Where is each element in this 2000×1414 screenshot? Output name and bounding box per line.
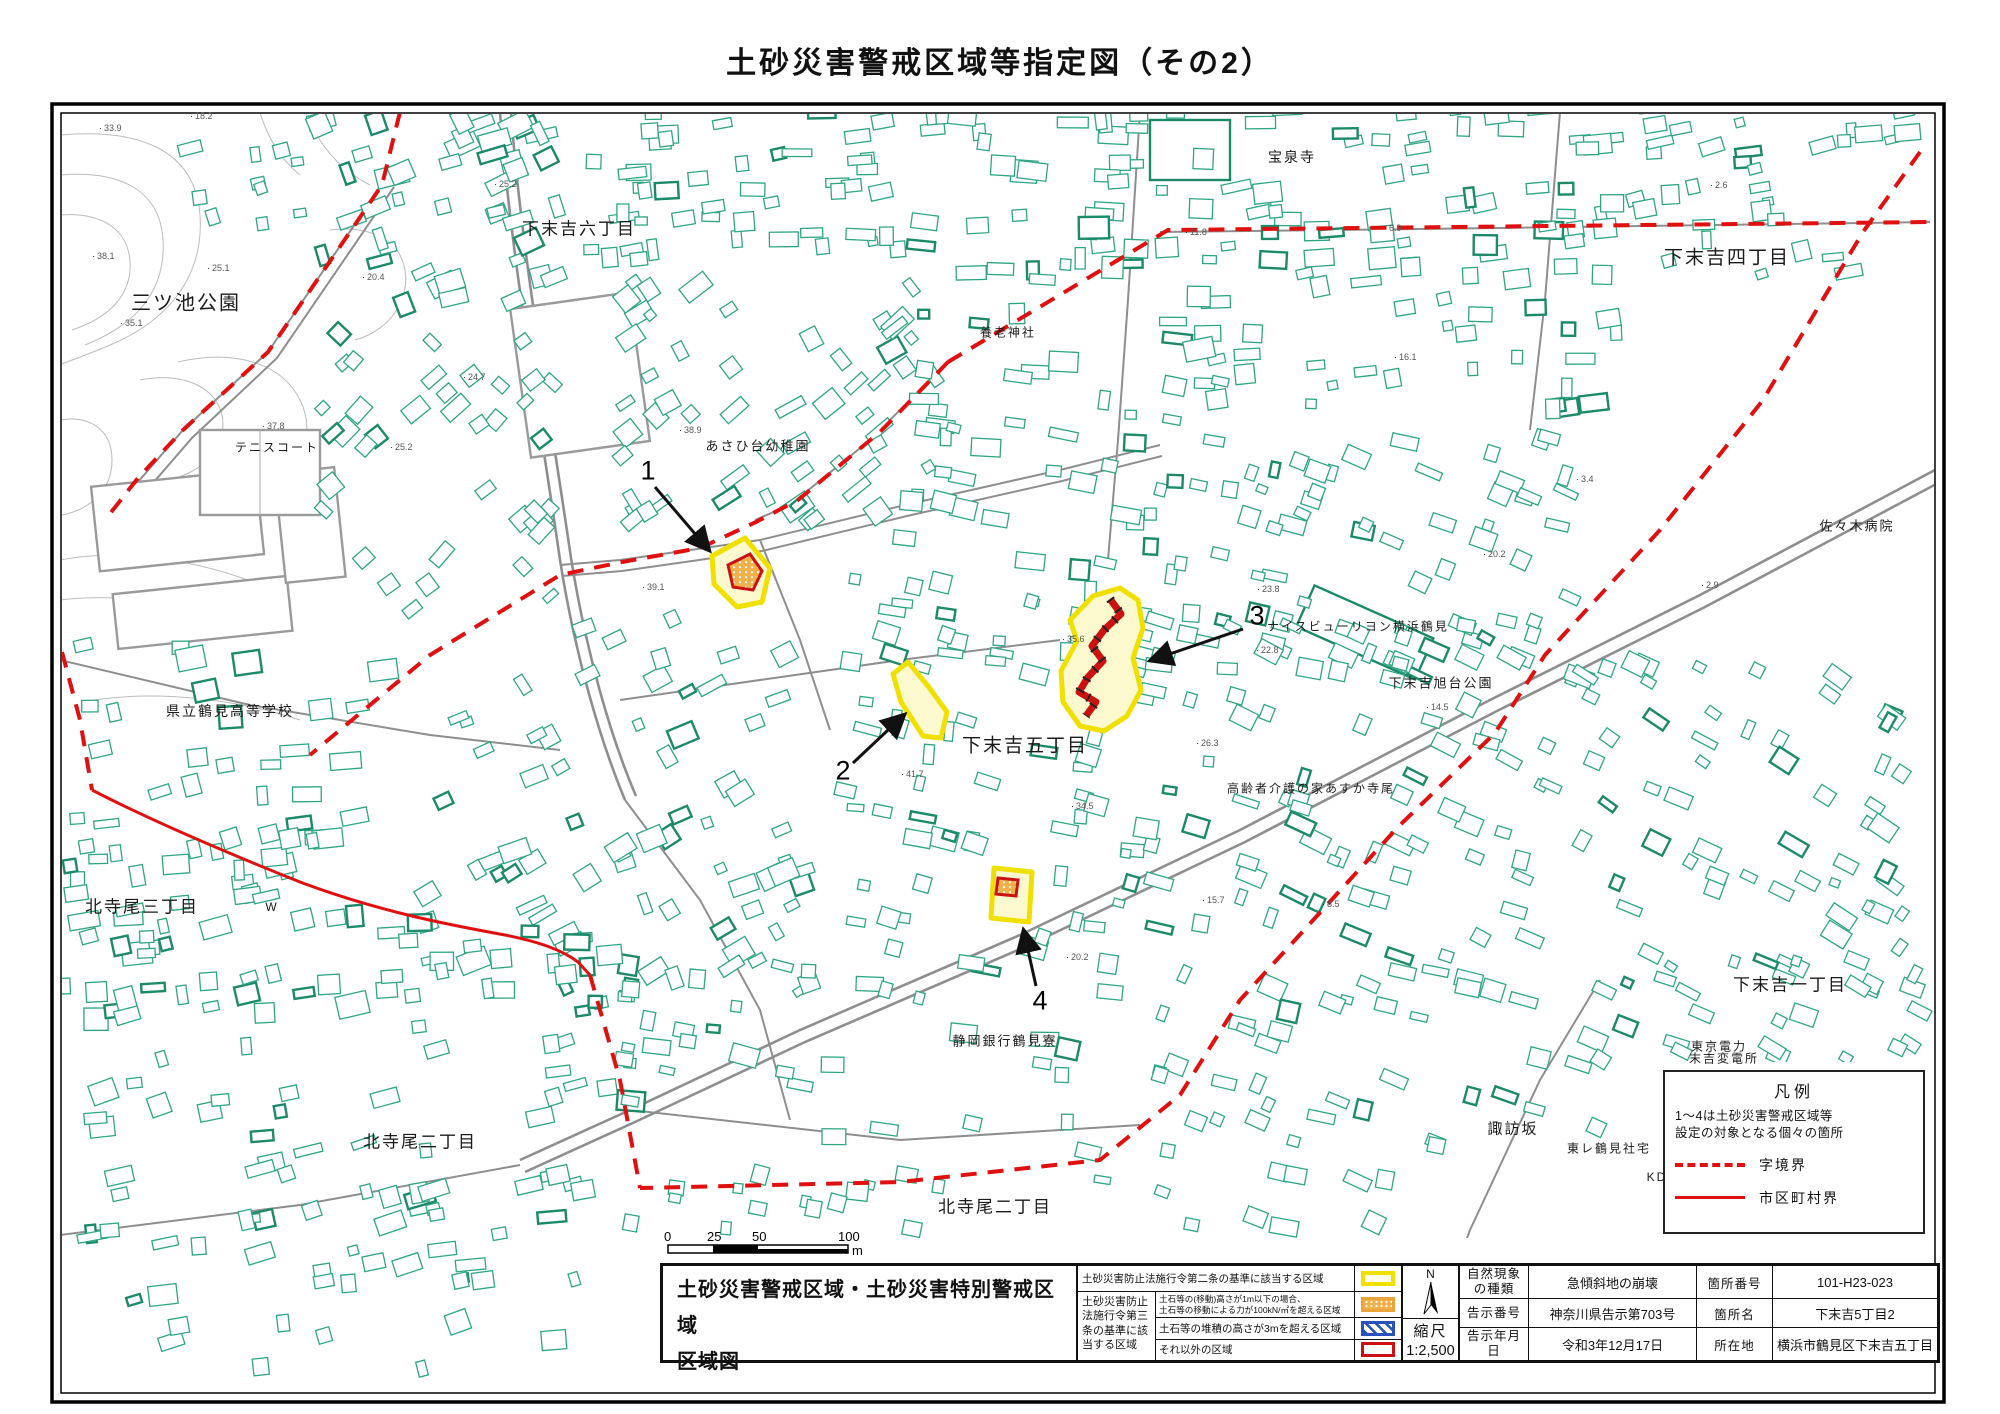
title-line2: 区域図 <box>677 1344 1062 1380</box>
elev: 38.9 <box>679 425 702 435</box>
elev: 8.5 <box>1322 899 1340 909</box>
info-value: 神奈川県告示第703号 <box>1528 1298 1696 1327</box>
elev: 25.1 <box>207 263 230 273</box>
map-label: W <box>265 900 278 914</box>
elev: 3.4 <box>1576 474 1594 484</box>
solid-boundary-label: 市区町村界 <box>1759 1188 1839 1208</box>
north-arrow-icon <box>1421 1280 1441 1316</box>
map-label: 佐々木病院 <box>1819 516 1894 535</box>
info-label: 自然現象 の種類 <box>1460 1266 1528 1298</box>
elev: 25.2 <box>390 442 413 452</box>
scale-25: 25 <box>707 1230 721 1244</box>
elev: 11.8 <box>1185 227 1207 237</box>
elev: 20.4 <box>362 272 385 282</box>
info-value: 急傾斜地の崩壊 <box>1528 1266 1696 1298</box>
map-label: あさひ台幼稚園 <box>705 436 810 455</box>
legend-group-label: 土砂災害防止法施行令第三条の基準に該当する区域 <box>1078 1292 1156 1360</box>
elev: 33.9 <box>99 123 122 133</box>
north-scale-cell: N 縮尺 1:2,500 <box>1401 1266 1458 1360</box>
info-value: 下末吉5丁目2 <box>1772 1298 1937 1327</box>
legend-swatch-red-icon <box>1361 1342 1395 1357</box>
scale-100: 100 <box>838 1230 860 1244</box>
info-value: 令和3年12月17日 <box>1528 1327 1696 1360</box>
elev: 24.7 <box>463 372 486 382</box>
elev: 16.1 <box>1394 352 1417 362</box>
legend-note-line1: 1～4は土砂災害警戒区域等 <box>1675 1108 1913 1125</box>
page: 土砂災害警戒区域等指定図（その2） <box>0 0 2000 1414</box>
title-block-info-table: 自然現象 の種類 急傾斜地の崩壊 箇所番号 101-H23-023 告示番号 神… <box>1458 1266 1937 1360</box>
map-label: 下末吉五丁目 <box>962 731 1088 758</box>
elev: 20.2 <box>1066 952 1089 962</box>
scale-unit: m <box>852 1243 863 1258</box>
map-label: 北寺尾三丁目 <box>85 893 199 918</box>
elev: 23.8 <box>1257 584 1280 594</box>
title-block-legend: 土砂災害防止法施行令第二条の基準に該当する区域 土砂災害防止法施行令第三条の基準… <box>1076 1266 1401 1360</box>
map-label: 末吉変電所 <box>1689 1050 1759 1067</box>
zone-num: 3 <box>1249 601 1264 632</box>
solid-boundary-sample-icon <box>1675 1196 1745 1199</box>
map-label: 下末吉旭台公園 <box>1388 673 1493 692</box>
elev: 2.9 <box>1701 580 1719 590</box>
elev: 41.7 <box>901 769 924 779</box>
map-label: 北寺尾二丁目 <box>938 1193 1052 1218</box>
scale-value: 1:2,500 <box>1406 1343 1454 1359</box>
info-value: 101-H23-023 <box>1772 1266 1937 1298</box>
legend-row2-line1: 土石等の(移動)高さが1m以下の場合、 <box>1159 1294 1351 1305</box>
map-label: 養老神社 <box>980 324 1036 341</box>
elev: 22.8 <box>1256 645 1279 655</box>
map-label: 北寺尾二丁目 <box>363 1128 477 1153</box>
map-label: ナイスビューリヨン横浜鶴見 <box>1267 618 1449 635</box>
elev: 25.2 <box>494 179 517 189</box>
info-label: 箇所名 <box>1696 1298 1772 1327</box>
map-label: 静岡銀行鶴見寮 <box>952 1031 1057 1050</box>
legend-note-line2: 設定の対象となる個々の箇所 <box>1675 1125 1913 1142</box>
title-block: 土砂災害警戒区域・土砂災害特別警戒区域 区域図 土砂災害防止法施行令第二条の基準… <box>660 1263 1940 1363</box>
dashed-boundary-label: 字境界 <box>1759 1155 1807 1175</box>
zone-num: 4 <box>1032 986 1047 1017</box>
info-label: 告示年月日 <box>1460 1327 1528 1360</box>
info-label: 箇所番号 <box>1696 1266 1772 1298</box>
zone-num: 1 <box>640 456 655 487</box>
map-label: 下末吉四丁目 <box>1664 243 1790 270</box>
map-label: 東レ鶴見社宅 <box>1567 1140 1651 1157</box>
info-label: 告示番号 <box>1460 1298 1528 1327</box>
legend-swatch-yellow-icon <box>1361 1271 1395 1286</box>
elev: 14.5 <box>1426 702 1449 712</box>
scale-50: 50 <box>752 1230 766 1244</box>
elev: 37.8 <box>262 421 285 431</box>
map-label: 県立鶴見高等学校 <box>166 701 294 721</box>
legend-row2-line2: 土石等の移動による力が100kN/㎡を超える区域 <box>1159 1305 1351 1316</box>
map-label: 下末吉六丁目 <box>522 215 636 240</box>
elev: 34.5 <box>1071 801 1094 811</box>
legend-row4-label: それ以外の区域 <box>1159 1342 1351 1357</box>
scale-0: 0 <box>664 1230 671 1244</box>
elev: 35.6 <box>1062 634 1085 644</box>
elev: 18.2 <box>190 111 213 121</box>
map-legend-box: 凡例 1～4は土砂災害警戒区域等 設定の対象となる個々の箇所 字境界 市区町村界 <box>1663 1070 1925 1234</box>
legend-swatch-orange-icon <box>1361 1297 1395 1312</box>
map-label: 諏訪坂 <box>1487 1118 1538 1139</box>
map-label: 三ツ池公園 <box>131 287 241 316</box>
map-label: テニスコート <box>235 439 319 456</box>
scale-label: 縮尺 <box>1413 1320 1447 1341</box>
info-label: 所在地 <box>1696 1327 1772 1360</box>
map-label: 高齢者介護の家あすか寺尾 <box>1227 780 1395 797</box>
dashed-boundary-sample-icon <box>1675 1163 1745 1167</box>
elev: 26.3 <box>1196 738 1219 748</box>
info-value: 横浜市鶴見区下末吉五丁目 <box>1772 1327 1937 1360</box>
legend-swatch-blue-icon <box>1361 1321 1395 1336</box>
elev: 39.1 <box>642 582 665 592</box>
map-label: 宝泉寺 <box>1268 147 1316 167</box>
elev: 2.6 <box>1710 180 1728 190</box>
elev: 38.1 <box>92 251 115 261</box>
legend-row1-label: 土砂災害防止法施行令第二条の基準に該当する区域 <box>1078 1266 1354 1291</box>
elev: 35.1 <box>120 318 143 328</box>
elev: 15.7 <box>1202 895 1225 905</box>
map-label: 下末吉一丁目 <box>1733 971 1847 996</box>
legend-title: 凡例 <box>1675 1078 1913 1102</box>
title-line1: 土砂災害警戒区域・土砂災害特別警戒区域 <box>677 1272 1062 1344</box>
zone-num: 2 <box>835 756 850 787</box>
north-label: N <box>1426 1268 1435 1280</box>
legend-row3-label: 土石等の堆積の高さが3mを超える区域 <box>1159 1321 1351 1336</box>
title-block-heading: 土砂災害警戒区域・土砂災害特別警戒区域 区域図 <box>663 1266 1076 1360</box>
scale-bar: 0 25 50 100 m <box>652 1230 892 1267</box>
elev: 20.2 <box>1483 549 1506 559</box>
elev: 6.9 <box>1384 223 1402 233</box>
